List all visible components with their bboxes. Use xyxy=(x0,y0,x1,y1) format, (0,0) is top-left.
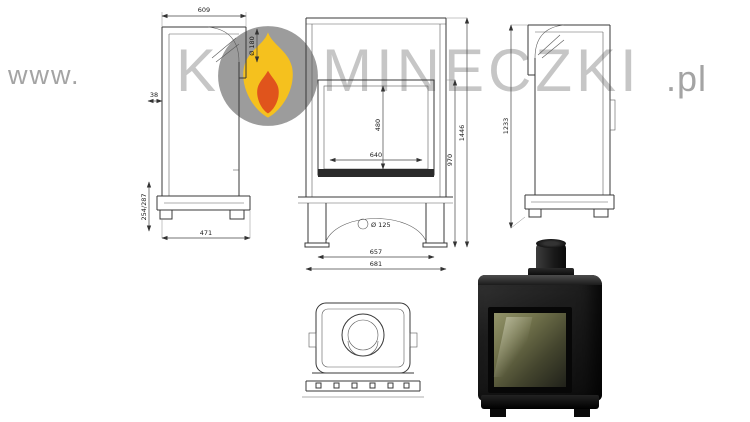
dim-total-width: 681 xyxy=(370,260,382,268)
front-dimensions: 640 480 970 1446 Ø 125 657 681 xyxy=(306,18,467,269)
dim-air-inlet: Ø 125 xyxy=(371,221,391,229)
watermark-domain-suffix: .pl xyxy=(666,58,707,100)
dim-flue-diameter: Ø 180 xyxy=(248,36,256,56)
dim-body-height: 1233 xyxy=(502,118,510,135)
dim-top-width: 609 xyxy=(198,6,210,14)
fireplace-insert-photo xyxy=(478,243,602,421)
dim-depth: 471 xyxy=(200,229,212,237)
dim-glass-width: 640 xyxy=(370,151,382,159)
glass-reflection xyxy=(494,317,533,377)
dim-total-height: 1446 xyxy=(458,125,466,142)
watermark-www: www. xyxy=(8,60,81,91)
insert-bottom-lip xyxy=(481,395,599,409)
flue-collar-inner xyxy=(348,320,378,350)
dim-inner-width: 657 xyxy=(370,248,382,256)
dim-glass-height: 480 xyxy=(374,119,382,131)
insert-foot-right xyxy=(574,409,590,417)
insert-top-plate xyxy=(478,275,602,285)
insert-foot-left xyxy=(490,409,506,417)
view-side-left: 609 Ø 180 38 254/287 471 xyxy=(140,0,270,246)
view-side-right: 1233 xyxy=(498,0,633,240)
side-right-dimensions: 1233 xyxy=(502,25,528,228)
side-right-outline xyxy=(525,25,615,217)
view-front: 640 480 970 1446 Ø 125 657 681 xyxy=(278,5,473,277)
plan-outline xyxy=(302,303,424,397)
view-plan xyxy=(292,293,432,405)
insert-window-glass xyxy=(488,307,572,393)
side-left-outline xyxy=(157,27,250,219)
dim-base-height-range: 254/287 xyxy=(140,193,148,220)
front-outline xyxy=(298,18,453,247)
dim-opening-height: 970 xyxy=(446,154,454,166)
dim-mount-offset: 38 xyxy=(150,91,158,99)
screenshot-root: www. K MINECZKI .pl xyxy=(0,0,750,422)
